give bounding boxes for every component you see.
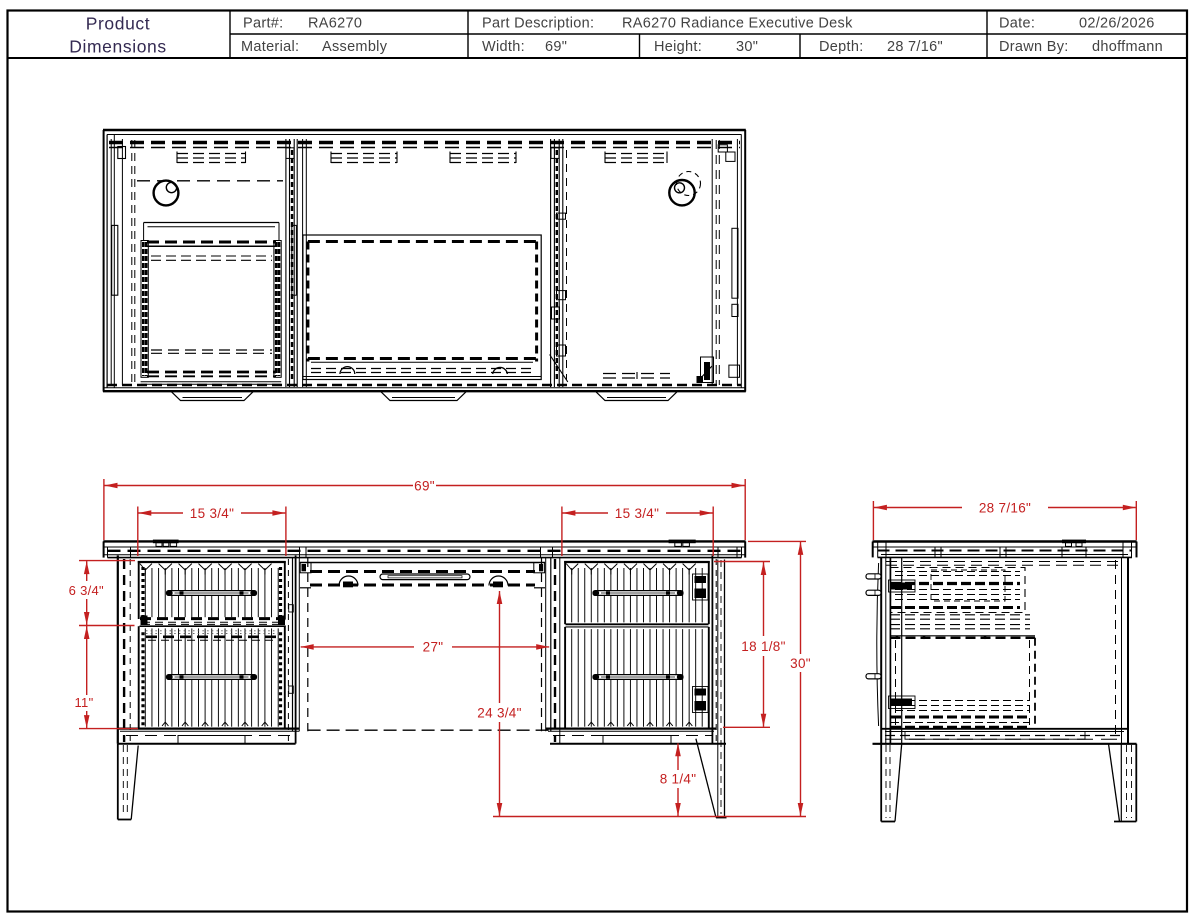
svg-text:8 1/4": 8 1/4" <box>660 772 697 787</box>
svg-text:02/26/2026: 02/26/2026 <box>1079 16 1155 32</box>
svg-text:30": 30" <box>736 39 758 55</box>
svg-text:Assembly: Assembly <box>322 39 388 55</box>
svg-text:69": 69" <box>545 39 567 55</box>
svg-text:15 3/4": 15 3/4" <box>190 506 234 521</box>
svg-text:RA6270 Radiance Executive Desk: RA6270 Radiance Executive Desk <box>622 16 853 32</box>
svg-text:30": 30" <box>790 656 811 671</box>
svg-text:Part#:: Part#: <box>243 16 284 32</box>
svg-text:6 3/4": 6 3/4" <box>69 583 104 598</box>
svg-text:Height:: Height: <box>654 39 702 55</box>
svg-text:Part Description:: Part Description: <box>482 16 594 32</box>
svg-text:69": 69" <box>414 478 435 493</box>
svg-text:28 7/16": 28 7/16" <box>979 500 1031 515</box>
svg-text:11": 11" <box>74 695 93 710</box>
svg-text:RA6270: RA6270 <box>308 16 362 32</box>
svg-text:Product: Product <box>86 14 151 34</box>
svg-text:Width:: Width: <box>482 39 525 55</box>
svg-text:Material:: Material: <box>241 39 299 55</box>
svg-text:28 7/16": 28 7/16" <box>887 39 943 55</box>
svg-text:15 3/4": 15 3/4" <box>615 506 659 521</box>
svg-text:Drawn By:: Drawn By: <box>999 39 1069 55</box>
svg-text:18 1/8": 18 1/8" <box>741 639 785 654</box>
svg-text:Dimensions: Dimensions <box>69 37 166 57</box>
svg-text:dhoffmann: dhoffmann <box>1092 39 1163 55</box>
svg-text:27": 27" <box>423 640 444 655</box>
svg-text:Date:: Date: <box>999 16 1035 32</box>
svg-text:Depth:: Depth: <box>819 39 864 55</box>
svg-text:24 3/4": 24 3/4" <box>477 706 521 721</box>
